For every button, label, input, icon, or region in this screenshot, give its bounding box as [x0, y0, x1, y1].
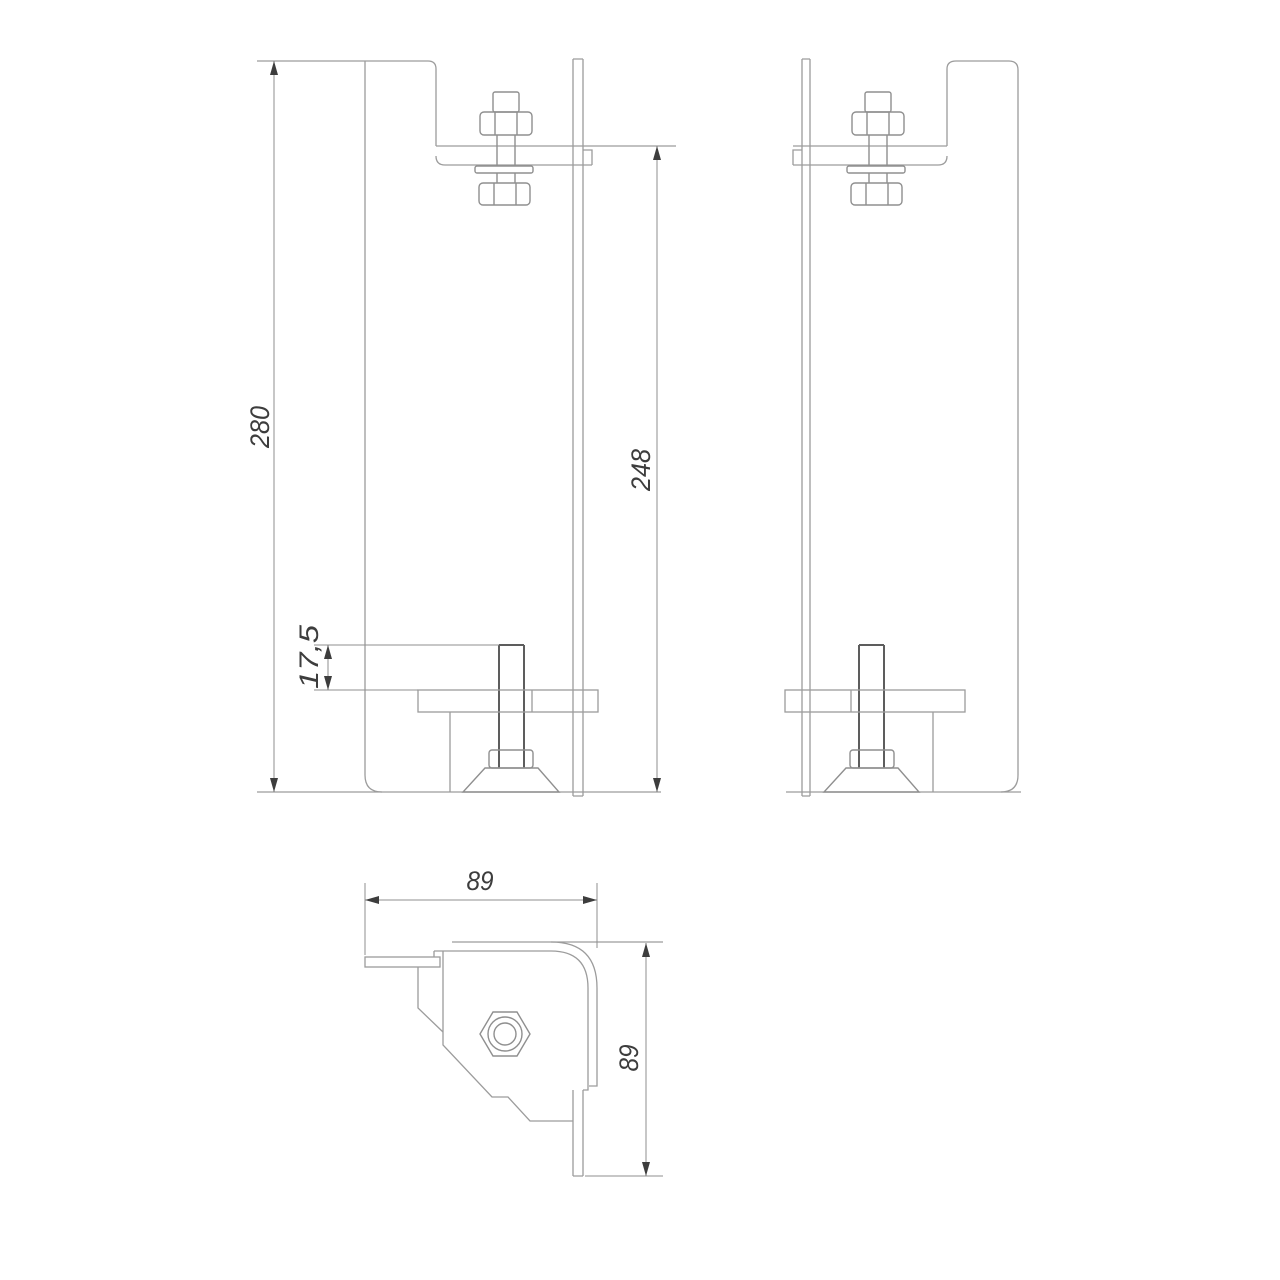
upper-nut — [480, 112, 532, 135]
nut-washer-circle — [488, 1017, 522, 1051]
hex-nut-top-view — [480, 1012, 530, 1056]
adjuster-foot — [824, 768, 919, 792]
bolt-head — [865, 92, 891, 112]
upper-nut-facets — [495, 112, 517, 135]
bolt-shank-lower — [497, 173, 515, 183]
drawing-sheet: 280 17,5 248 — [0, 0, 1280, 1280]
arrowhead-down — [324, 676, 332, 690]
front-view: 280 17,5 248 — [245, 59, 676, 796]
arrowhead-down — [270, 778, 278, 792]
thin-plate-edges — [573, 59, 583, 796]
plate-left-edge — [365, 61, 382, 792]
bottom-view: 89 89 — [365, 866, 663, 1176]
bolt-shank — [869, 135, 887, 166]
inner-corner — [434, 951, 588, 1090]
arrowhead-up — [270, 61, 278, 75]
plate-top-edge — [257, 61, 436, 146]
bolt-shank-lower — [869, 173, 887, 183]
dimension-label-280: 280 — [245, 406, 275, 449]
lock-nut-facets — [866, 183, 888, 205]
dimension-label-248: 248 — [626, 449, 656, 492]
lower-bar — [785, 690, 965, 712]
arrowhead-down — [653, 778, 661, 792]
arrowhead-up — [653, 146, 661, 160]
upper-nut — [852, 112, 904, 135]
gusset-back-edge — [418, 967, 443, 1032]
front-thin-plate — [573, 59, 583, 796]
washer — [475, 166, 533, 173]
front-lower-adjuster — [418, 645, 598, 792]
plate-right-edge — [1001, 70, 1018, 792]
shelf-bottom-edge — [793, 156, 947, 165]
side-lower-adjuster — [785, 645, 965, 792]
washer — [847, 166, 905, 173]
adjuster-nut — [489, 750, 533, 768]
stud-bore-circle — [494, 1023, 516, 1045]
front-upper-bolt — [475, 92, 533, 205]
lower-bar — [418, 690, 598, 712]
arrowhead-right — [583, 896, 597, 904]
arrowhead-down — [642, 1162, 650, 1176]
dimension-label-89-depth: 89 — [614, 1045, 644, 1072]
dimension-label-17-5: 17,5 — [294, 624, 324, 689]
plate-top-edge — [947, 61, 1018, 146]
dimension-overall-height: 280 — [245, 61, 278, 792]
thin-plate-edges — [802, 59, 810, 796]
adjuster-foot — [463, 768, 559, 792]
shelf-tab — [793, 150, 802, 165]
side-thin-plate — [802, 59, 810, 796]
dimension-stud-protrusion: 17,5 — [294, 624, 499, 690]
thin-plate-section — [573, 1090, 583, 1176]
adjuster-nut — [850, 750, 894, 768]
front-upper-shelf — [436, 146, 676, 165]
lock-nut — [851, 183, 902, 205]
arrowhead-up — [642, 943, 650, 957]
side-view — [785, 59, 1021, 796]
outer-corner — [551, 942, 597, 1086]
shelf-end-tab — [365, 957, 440, 967]
shelf-tab — [583, 150, 592, 165]
arrowhead-up — [324, 645, 332, 659]
lock-nut — [479, 183, 530, 205]
dimension-bracket-height: 248 — [626, 146, 661, 792]
lock-nut-facets — [494, 183, 516, 205]
side-upper-bolt — [847, 92, 905, 205]
dimension-label-89-width: 89 — [467, 866, 494, 896]
side-upper-shelf — [793, 146, 947, 165]
side-main-plate — [786, 61, 1021, 792]
gusset-outline — [434, 951, 573, 1121]
upper-nut-facets — [867, 112, 889, 135]
shelf-bottom-edge — [436, 156, 592, 165]
technical-drawing: 280 17,5 248 — [0, 0, 1280, 1280]
arrowhead-left — [365, 896, 379, 904]
bolt-head — [493, 92, 519, 112]
bolt-shank — [497, 135, 515, 166]
